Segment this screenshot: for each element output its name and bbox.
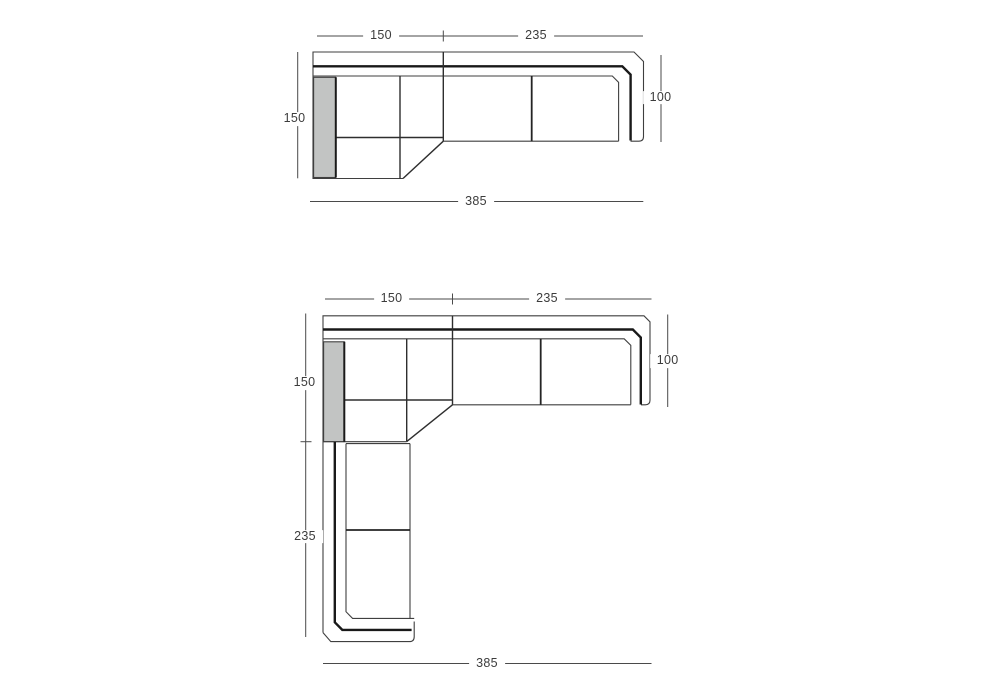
technical-drawing-page: 150 235 150 100 385 150 235 150 235 100 … bbox=[0, 0, 1000, 700]
dim-label-top-seg1: 150 bbox=[374, 292, 410, 306]
dim-label-left-upper: 150 bbox=[287, 376, 323, 390]
corner-diagonal-line bbox=[403, 141, 443, 178]
backrest-inner-line bbox=[313, 76, 619, 141]
return-inner-line bbox=[346, 444, 414, 619]
corner-diagonal-line bbox=[407, 405, 453, 442]
dim-label-bottom: 385 bbox=[469, 657, 505, 671]
dim-label-left-lower: 235 bbox=[287, 530, 323, 544]
sofa-plan-corner bbox=[301, 294, 668, 664]
sofa-outline bbox=[323, 316, 650, 633]
sofa-plan-top bbox=[298, 31, 661, 202]
sofa-outline bbox=[313, 52, 644, 179]
backrest-heavy-line bbox=[313, 66, 631, 140]
dim-label-right: 100 bbox=[650, 354, 686, 368]
armrest-fill bbox=[314, 77, 336, 177]
dim-label-top-seg2: 235 bbox=[518, 29, 554, 43]
dim-label-right: 100 bbox=[643, 91, 679, 105]
dim-label-left: 150 bbox=[277, 112, 313, 126]
sofa-dimension-linework bbox=[0, 0, 1000, 700]
armrest-fill bbox=[324, 342, 345, 442]
dim-label-bottom: 385 bbox=[458, 195, 494, 209]
dim-label-top-seg1: 150 bbox=[363, 29, 399, 43]
backrest-inner-line bbox=[323, 339, 631, 405]
dim-label-top-seg2: 235 bbox=[529, 292, 565, 306]
backrest-heavy-line bbox=[323, 330, 641, 405]
